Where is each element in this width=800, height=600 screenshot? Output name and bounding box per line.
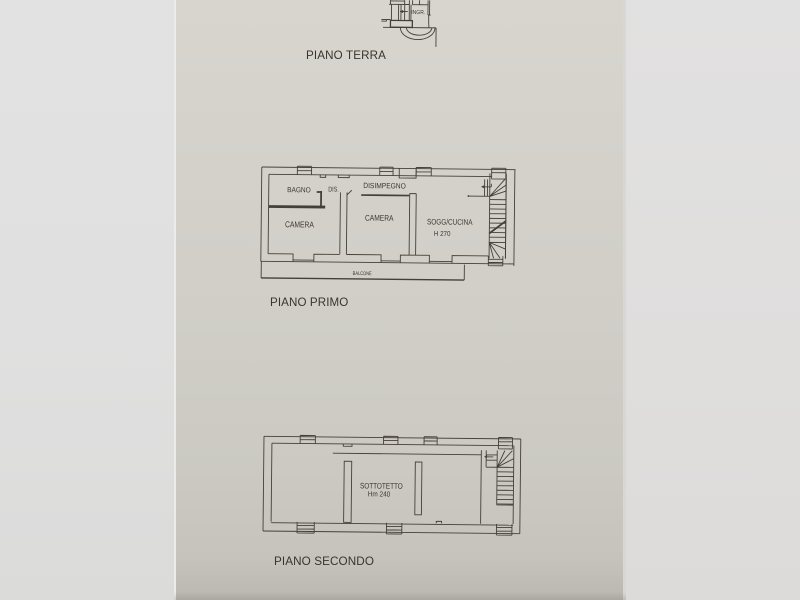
svg-text:BAGNO: BAGNO <box>287 185 311 194</box>
svg-text:CAMERA: CAMERA <box>365 213 394 223</box>
svg-text:INGR.: INGR. <box>411 10 425 16</box>
svg-text:SOGG/CUCINA: SOGG/CUCINA <box>427 217 473 226</box>
svg-text:DIS.: DIS. <box>328 186 339 193</box>
svg-text:CAMERA: CAMERA <box>285 219 314 229</box>
svg-text:H 270: H 270 <box>434 229 451 238</box>
svg-text:DISIMPEGNO: DISIMPEGNO <box>363 181 406 190</box>
svg-text:BALCONE: BALCONE <box>353 271 372 277</box>
svg-text:Hm 240: Hm 240 <box>368 489 391 498</box>
